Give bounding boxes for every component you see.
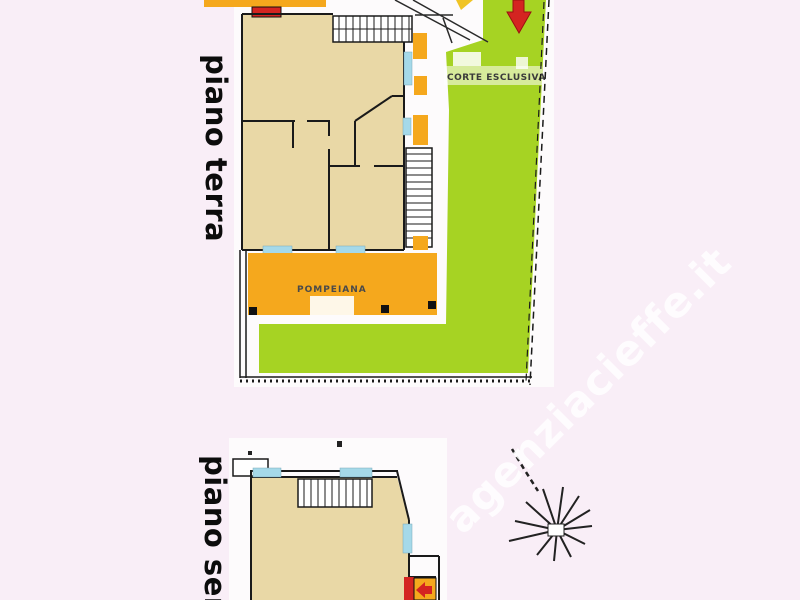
window-icon [404,52,412,85]
window-icon [403,118,411,135]
scan-noise [310,296,354,315]
door-icon [414,76,427,95]
floor-plan-page: CORTE ESCLUSIVA [0,0,800,600]
red-marker-block [404,577,414,600]
building-body [242,14,404,250]
terrace-area: POMPEIANA [248,253,437,315]
scan-noise [453,52,481,66]
door-icon [413,33,427,59]
window-icon [336,246,365,254]
window-icon [403,524,412,553]
courtyard-label: CORTE ESCLUSIVA [447,73,546,83]
top-stairs [333,16,412,42]
window-icon [263,246,292,254]
upper-terrace-strip [204,0,326,7]
pergola-label: POMPEIANA [297,285,367,295]
basement-stairs [298,479,372,507]
pillar [428,301,436,309]
window-icon [253,468,281,477]
floor-label-ground: piano terra [199,54,233,242]
floor-label-basement: piano seminterrato [198,455,232,600]
scan-noise [337,441,342,447]
pillar [381,305,389,313]
external-stairs [406,148,432,247]
pillar [249,307,257,315]
scan-noise [248,451,252,455]
red-marker-block [252,7,281,17]
window-icon [340,468,372,477]
door-icon [413,115,428,145]
door-icon [413,236,428,250]
